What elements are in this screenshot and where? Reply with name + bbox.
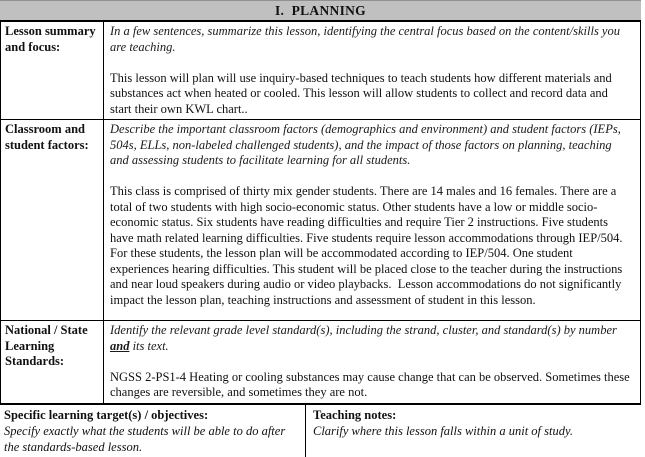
table-row-lesson-summary: Lesson summary and focus: In a few sente… [1,22,640,120]
planning-section-header: I. PLANNING [0,0,641,22]
row-content-lesson-summary: In a few sentences, summarize this lesso… [104,22,640,119]
table-row-learning-standards: National / State Learning Standards: Ide… [1,321,640,403]
teaching-notes-cell: Teaching notes: Clarify where this lesso… [306,405,641,457]
planning-table: Lesson summary and focus: In a few sente… [0,22,641,403]
response-lesson-summary: This lesson will plan will use inquiry-b… [110,71,631,118]
table-row-classroom-factors: Classroom and student factors: Describe … [1,120,640,321]
learning-targets-prompt: Specify exactly what the students will b… [4,423,297,455]
prompt-classroom-factors: Describe the important classroom factors… [110,122,631,169]
objectives-and-notes-section: Specific learning target(s) / objectives… [0,403,641,457]
row-label-learning-standards: National / State Learning Standards: [1,321,104,403]
teaching-notes-prompt: Clarify where this lesson falls within a… [313,423,633,439]
teaching-notes-heading: Teaching notes: [313,407,633,423]
section-title: I. PLANNING [275,3,366,18]
prompt-lesson-summary: In a few sentences, summarize this lesso… [110,24,631,55]
row-content-classroom-factors: Describe the important classroom factors… [104,120,640,320]
learning-targets-cell: Specific learning target(s) / objectives… [0,405,306,457]
row-label-lesson-summary: Lesson summary and focus: [1,22,104,119]
prompt-part-after: its text. [129,339,168,353]
response-learning-standards: NGSS 2-PS1-4 Heating or cooling substanc… [110,370,631,401]
response-classroom-factors: This class is comprised of thirty mix ge… [110,184,631,308]
row-label-classroom-factors: Classroom and student factors: [1,120,104,320]
learning-targets-heading: Specific learning target(s) / objectives… [4,407,297,423]
prompt-part-emphasized: and [110,339,129,353]
lesson-plan-document: I. PLANNING Lesson summary and focus: In… [0,0,645,447]
row-content-learning-standards: Identify the relevant grade level standa… [104,321,640,403]
prompt-part-before: Identify the relevant grade level standa… [110,323,617,337]
prompt-learning-standards: Identify the relevant grade level standa… [110,323,631,354]
